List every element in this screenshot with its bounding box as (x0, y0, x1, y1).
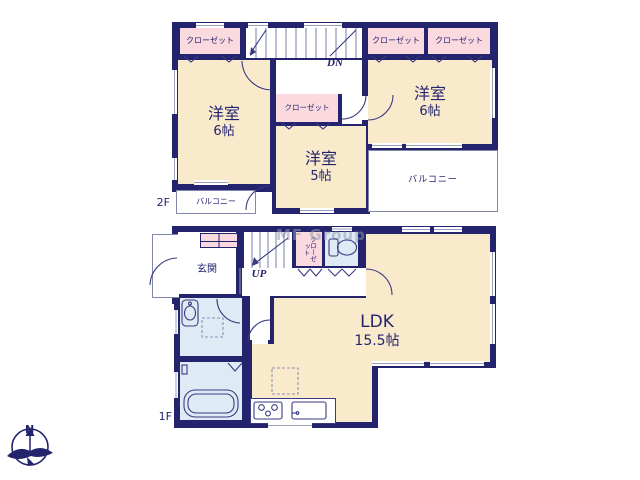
floor-label-text: 1F (159, 410, 172, 424)
window (406, 143, 462, 148)
window (490, 252, 495, 296)
entrance-label: 玄関 (197, 250, 217, 277)
room-size: 5帖 (310, 169, 331, 185)
1f-washroom (180, 298, 242, 356)
window (172, 158, 177, 180)
room-size: 15.5帖 (354, 333, 399, 351)
2f-closet-top-right-1: クローゼット (368, 28, 424, 54)
window (402, 227, 430, 232)
window (248, 23, 268, 28)
balcony-label: バルコニー (408, 175, 458, 186)
window (174, 310, 178, 334)
room-name: LDK (360, 312, 394, 333)
watermark: MF Group (276, 226, 366, 244)
1f-corridor (250, 296, 270, 340)
window (304, 23, 342, 28)
up-label: UP (252, 268, 267, 282)
1f-floor-label: 1F (144, 410, 172, 424)
closet-label: クローゼット (372, 36, 420, 46)
watermark-text: MF Group (276, 226, 366, 244)
compass-icon: N (7, 423, 53, 466)
closet-label: クローゼット (435, 36, 483, 46)
floor-label-text: 2F (157, 196, 170, 210)
balcony-label: バルコニー (196, 197, 236, 207)
window (490, 68, 495, 118)
2f-closet-top-right-2: クローゼット (428, 28, 490, 54)
room-name: 洋室 (414, 84, 446, 104)
2f-stairs-direction: DN (320, 57, 350, 70)
1f-kitchen-counter (250, 398, 336, 424)
floor-plan: クローゼット クローゼット クローゼット 洋室 6帖 クローゼット 洋室 5帖 … (0, 0, 640, 480)
1f-bathroom (180, 362, 242, 420)
window (194, 180, 228, 185)
closet-label: クローゼット (285, 103, 330, 112)
door-opening (252, 340, 268, 344)
closet-label: クローゼット (186, 36, 234, 46)
2f-room-left: 洋室 6帖 (178, 60, 270, 184)
window (434, 227, 462, 232)
room-name: 洋室 (208, 104, 240, 124)
door-opening (362, 268, 366, 296)
window (430, 361, 484, 366)
window (490, 304, 495, 344)
1f-shoe-cabinet (200, 233, 238, 248)
room-size: 6帖 (213, 124, 234, 140)
window (300, 208, 334, 213)
2f-closet-middle: クローゼット (276, 94, 338, 122)
window (268, 423, 312, 428)
room-size: 6帖 (419, 104, 440, 120)
dn-label: DN (327, 57, 343, 71)
window (172, 70, 177, 114)
window (372, 361, 424, 366)
2f-closet-top-left: クローゼット (180, 28, 240, 54)
window (196, 23, 224, 28)
room-name: 洋室 (305, 149, 337, 169)
2f-room-middle: 洋室 5帖 (276, 126, 366, 208)
2f-balcony-left: バルコニー (176, 190, 256, 214)
1f-porch (152, 234, 179, 298)
2f-balcony-right: バルコニー (368, 150, 498, 212)
2f-room-right: 洋室 6帖 (368, 60, 492, 144)
2f-hall-patch (342, 94, 362, 124)
window (174, 372, 178, 398)
door-opening (362, 96, 368, 120)
2f-staircase (246, 28, 362, 58)
2f-floor-label: 2F (144, 196, 170, 210)
1f-ldk-label: LDK 15.5帖 (330, 310, 424, 352)
1f-stairs-direction: UP (244, 268, 274, 281)
window (372, 143, 402, 148)
compass-north-label: N (25, 423, 34, 436)
